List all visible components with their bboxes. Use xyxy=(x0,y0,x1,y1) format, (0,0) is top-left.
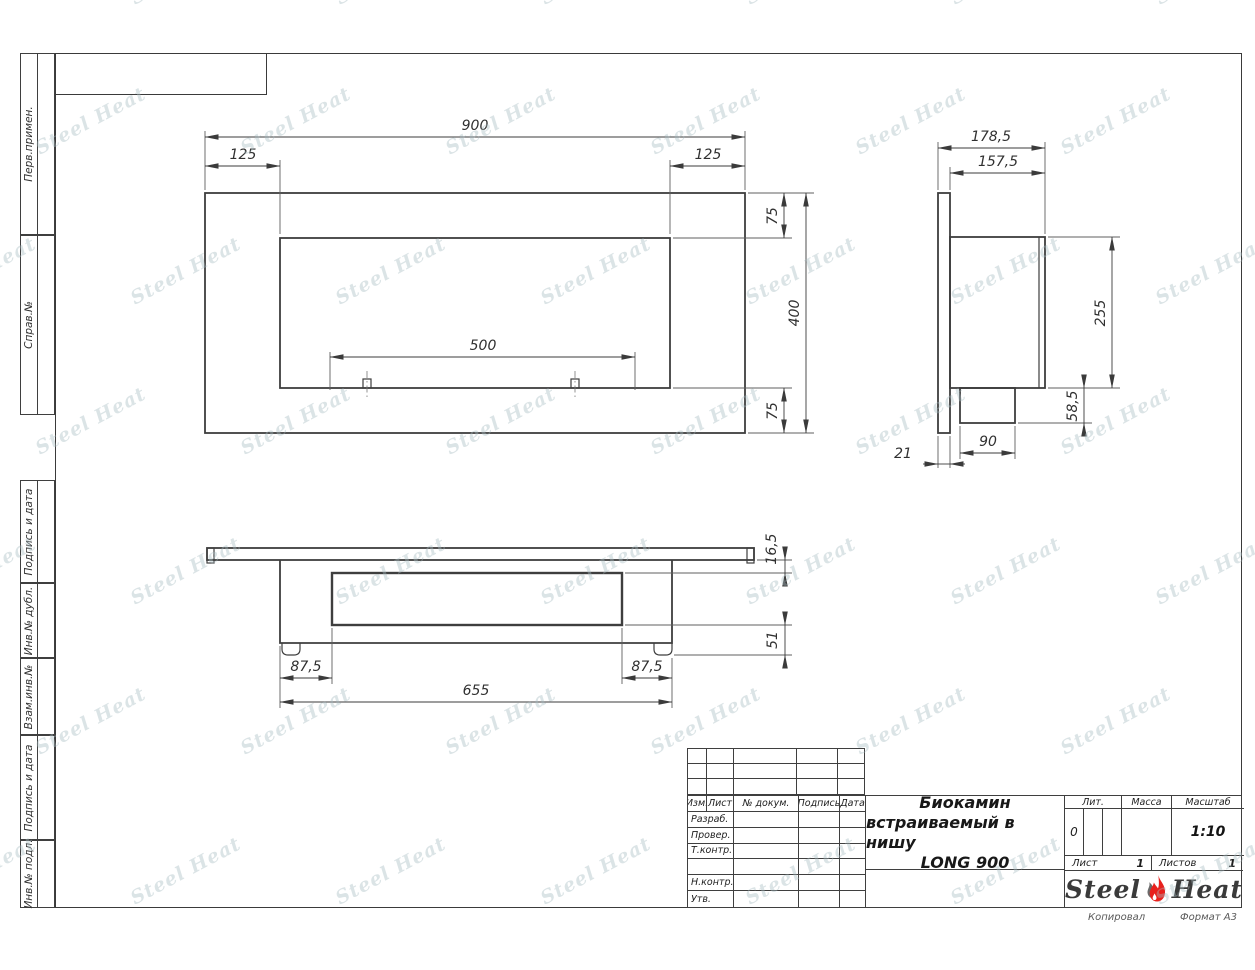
role-label-blank xyxy=(688,859,734,875)
footer-copied-label: Копировал xyxy=(1088,912,1145,923)
side-column-divider xyxy=(37,481,38,582)
role-label-nkontr: Н.контр. xyxy=(688,875,734,891)
sheets-cell: Листов 1 xyxy=(1152,856,1243,870)
side-column-divider xyxy=(37,659,38,734)
logo-steel-text: Steel xyxy=(1065,875,1141,904)
col-header-list: Лист xyxy=(707,796,734,812)
side-column-label: Перв.примен. xyxy=(23,106,35,181)
side-column-box: Перв.примен. xyxy=(20,53,55,235)
revision-cell xyxy=(797,779,838,794)
lit-value-cell: 0 xyxy=(1065,809,1084,855)
title-line-2: встраиваемый в нишу xyxy=(866,813,1064,853)
role-label-prover: Провер. xyxy=(688,828,734,844)
titleblock-cell xyxy=(734,891,799,907)
titleblock-cell xyxy=(799,875,840,891)
col-header-podpis: Подпись xyxy=(799,796,840,812)
side-column-label: Справ.№ xyxy=(23,301,35,349)
scale-header: Масштаб xyxy=(1172,796,1244,809)
mass-header: Масса xyxy=(1122,796,1172,809)
side-column-label: Взам.инв.№ xyxy=(23,664,35,729)
revision-cell xyxy=(734,779,797,794)
revision-cell xyxy=(838,764,864,779)
corner-stamp-box xyxy=(55,53,267,95)
revision-cell xyxy=(734,764,797,779)
titleblock-cell xyxy=(734,828,799,844)
sheets-label: Листов xyxy=(1159,858,1196,869)
titleblock-cell xyxy=(799,891,840,907)
titleblock-cell xyxy=(840,891,866,907)
footer-format-label: Формат А3 xyxy=(1180,912,1237,923)
revision-cell xyxy=(797,764,838,779)
titleblock-cell xyxy=(840,875,866,891)
revision-cell xyxy=(688,779,707,794)
brand-logo: Steel Heat xyxy=(1065,871,1243,907)
titleblock-cell xyxy=(840,812,866,828)
titleblock-cell xyxy=(840,844,866,860)
revision-cell xyxy=(688,749,707,764)
revision-cell xyxy=(707,764,734,779)
sheet-row: Лист 1 Листов 1 xyxy=(1065,856,1243,871)
titleblock-center-bottom xyxy=(866,869,1064,907)
sheet-value: 1 xyxy=(1136,857,1144,870)
titleblock-right: Лит. Масса Масштаб 0 1:10 Лист 1 Листов … xyxy=(1064,796,1243,907)
revision-cell xyxy=(838,779,864,794)
side-column-box: Подпись и дата xyxy=(20,735,55,840)
role-label-razrab: Разраб. xyxy=(688,812,734,828)
side-column-divider xyxy=(37,736,38,839)
sheet-label: Лист xyxy=(1072,858,1097,869)
side-column-label: Инв.№ дубл. xyxy=(23,586,35,655)
sheet-cell: Лист 1 xyxy=(1065,856,1152,870)
side-column-divider xyxy=(37,841,38,907)
side-column-box: Справ.№ xyxy=(20,235,55,415)
side-column-divider xyxy=(37,236,38,414)
titleblock-cell xyxy=(734,844,799,860)
revision-cell xyxy=(707,779,734,794)
side-column-box: Инв.№ подл. xyxy=(20,840,55,908)
col-header-data: Дата xyxy=(840,796,866,812)
titleblock-cell xyxy=(840,828,866,844)
titleblock-center: Биокамин встраиваемый в нишу LONG 900 xyxy=(866,796,1064,907)
side-column-divider xyxy=(37,54,38,234)
side-column-label: Подпись и дата xyxy=(23,488,35,575)
lit-empty-cell xyxy=(1084,809,1103,855)
revision-cell xyxy=(797,749,838,764)
role-label-utv: Утв. xyxy=(688,891,734,907)
title-block: Изм. Лист № докум. Подпись Дата Разраб. … xyxy=(687,795,1242,908)
lit-header: Лит. xyxy=(1065,796,1122,809)
flame-icon xyxy=(1142,873,1171,905)
col-header-izm: Изм. xyxy=(688,796,707,812)
titleblock-cell xyxy=(840,859,866,875)
title-line-1: Биокамин xyxy=(919,793,1010,813)
titleblock-cell xyxy=(734,875,799,891)
titleblock-cell xyxy=(799,859,840,875)
lit-empty-cell xyxy=(1103,809,1122,855)
revision-table xyxy=(687,748,865,795)
revision-cell xyxy=(838,749,864,764)
revision-cell xyxy=(734,749,797,764)
side-column-label: Подпись и дата xyxy=(23,744,35,831)
titleblock-cell xyxy=(734,859,799,875)
document-title: Биокамин встраиваемый в нишу LONG 900 xyxy=(866,796,1064,869)
titleblock-cell xyxy=(799,844,840,860)
col-header-docnum: № докум. xyxy=(734,796,799,812)
side-column-divider xyxy=(37,584,38,657)
scale-value: 1:10 xyxy=(1172,809,1244,856)
side-column-box: Подпись и дата xyxy=(20,480,55,583)
role-label-tkontr: Т.контр. xyxy=(688,844,734,860)
titleblock-cell xyxy=(734,812,799,828)
sheets-value: 1 xyxy=(1228,857,1236,870)
sheet-frame xyxy=(55,53,1242,908)
side-column-label: Инв.№ подл. xyxy=(23,839,35,908)
mass-cell xyxy=(1122,809,1172,856)
titleblock-cell xyxy=(799,812,840,828)
logo-heat-text: Heat xyxy=(1172,875,1243,904)
revision-cell xyxy=(688,764,707,779)
revision-cell xyxy=(707,749,734,764)
drawing-sheet: 900 125 125 75 400 75 500 xyxy=(0,0,1255,970)
side-column-box: Взам.инв.№ xyxy=(20,658,55,735)
side-column-box: Инв.№ дубл. xyxy=(20,583,55,658)
titleblock-left-grid: Изм. Лист № докум. Подпись Дата Разраб. … xyxy=(688,796,866,907)
lit-cells: 0 xyxy=(1065,809,1122,856)
titleblock-cell xyxy=(799,828,840,844)
